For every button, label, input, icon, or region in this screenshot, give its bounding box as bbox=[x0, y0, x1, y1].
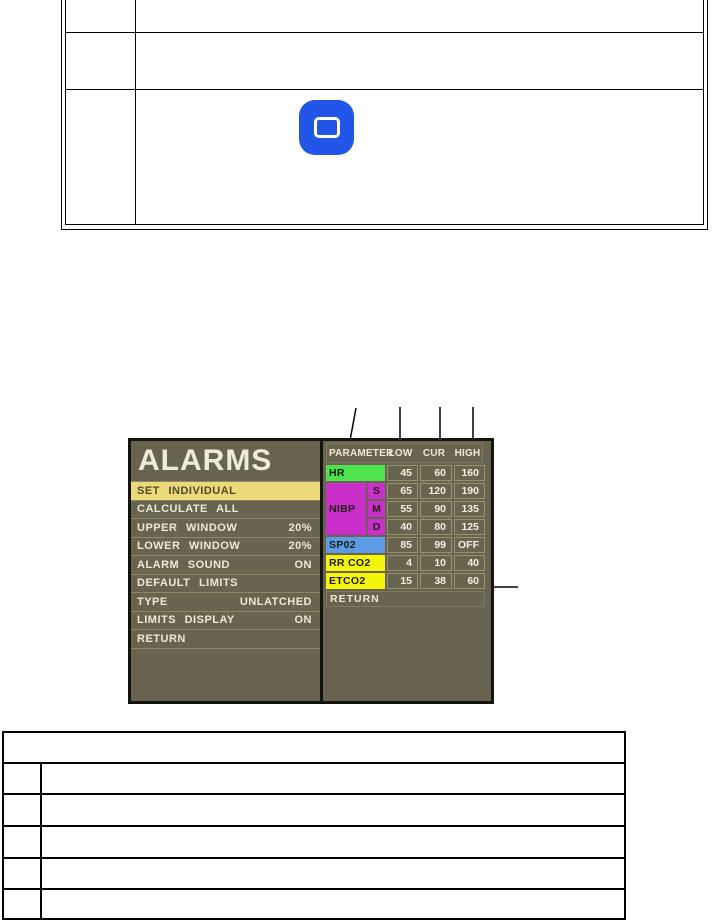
manual-page: ALARMS SET INDIVIDUAL CALCULATE ALL UPPE… bbox=[0, 0, 712, 922]
limit-cell-rr-co2-low[interactable]: 4 bbox=[387, 555, 418, 571]
column-header-high: HIGH bbox=[452, 448, 483, 459]
limit-cell-rr-co2-high[interactable]: 40 bbox=[454, 555, 485, 571]
limit-cell-spo2-high[interactable]: OFF bbox=[454, 537, 485, 553]
param-cell-etco2[interactable]: ETCO2 bbox=[326, 573, 385, 589]
menu-item-label: TYPE bbox=[137, 596, 240, 608]
table-cell bbox=[42, 859, 624, 888]
table-row bbox=[4, 764, 624, 795]
param-cell-spo2[interactable]: SP02 bbox=[326, 537, 385, 553]
table-cell bbox=[4, 764, 42, 793]
subparam-cell-nibp-m: M bbox=[368, 501, 385, 517]
alarms-screen: ALARMS SET INDIVIDUAL CALCULATE ALL UPPE… bbox=[128, 438, 494, 704]
table-cell bbox=[42, 764, 624, 793]
limit-cell-spo2-low[interactable]: 85 bbox=[387, 537, 418, 553]
table-cell bbox=[42, 827, 624, 857]
limit-cell-spo2-cur: 99 bbox=[420, 537, 452, 553]
menu-item-value: 20% bbox=[288, 522, 312, 534]
table-cell bbox=[66, 90, 136, 224]
limit-cell-hr-high[interactable]: 160 bbox=[454, 465, 485, 481]
table-cell bbox=[42, 890, 624, 918]
alarms-menu-list: SET INDIVIDUAL CALCULATE ALL UPPER WINDO… bbox=[131, 481, 320, 649]
table-row bbox=[66, 0, 703, 33]
menu-item-default-limits[interactable]: DEFAULT LIMITS bbox=[131, 575, 320, 594]
table-row bbox=[66, 33, 703, 90]
menu-item-label: CALCULATE ALL bbox=[137, 503, 312, 515]
menu-item-value: 20% bbox=[288, 540, 312, 552]
table-row bbox=[4, 827, 624, 859]
table-cell bbox=[136, 90, 703, 224]
subparam-cell-nibp-d: D bbox=[368, 519, 385, 535]
menu-item-label: LIMITS DISPLAY bbox=[137, 614, 295, 626]
menu-item-return[interactable]: RETURN bbox=[131, 630, 320, 649]
menu-item-alarm-sound[interactable]: ALARM SOUND ON bbox=[131, 556, 320, 575]
table-cell bbox=[4, 827, 42, 857]
limit-cell-nibp-m-cur: 90 bbox=[420, 501, 452, 517]
rounded-square-icon-inner bbox=[314, 117, 340, 138]
table-cell bbox=[42, 795, 624, 825]
limit-cell-etco2-high[interactable]: 60 bbox=[454, 573, 485, 589]
column-header-low: LOW bbox=[385, 448, 416, 459]
table-cell bbox=[66, 0, 136, 32]
param-cell-hr[interactable]: HR bbox=[326, 465, 385, 481]
top-table bbox=[61, 0, 708, 230]
table-cell bbox=[136, 0, 703, 32]
menu-item-limits-display[interactable]: LIMITS DISPLAY ON bbox=[131, 612, 320, 631]
table-row bbox=[4, 795, 624, 827]
menu-item-set-individual[interactable]: SET INDIVIDUAL bbox=[131, 482, 320, 501]
rounded-square-icon bbox=[299, 100, 354, 155]
limits-return-button[interactable]: RETURN bbox=[326, 591, 485, 607]
menu-item-type[interactable]: TYPE UNLATCHED bbox=[131, 593, 320, 612]
subparam-cell-nibp-s: S bbox=[368, 483, 385, 499]
limit-cell-nibp-d-low[interactable]: 40 bbox=[387, 519, 418, 535]
limit-cell-etco2-low[interactable]: 15 bbox=[387, 573, 418, 589]
table-row bbox=[4, 890, 624, 920]
limit-cell-nibp-m-low[interactable]: 55 bbox=[387, 501, 418, 517]
menu-item-label: DEFAULT LIMITS bbox=[137, 577, 312, 589]
page-title: ALARMS bbox=[138, 444, 320, 481]
limits-table-header: PARAMETER LOW CUR HIGH bbox=[326, 443, 483, 463]
alarm-limits-table: HR 45 60 160 NIBP S 65 120 190 M 55 90 1… bbox=[326, 465, 491, 607]
limit-cell-nibp-s-high[interactable]: 190 bbox=[454, 483, 485, 499]
table-cell bbox=[136, 33, 703, 89]
limit-cell-rr-co2-cur: 10 bbox=[420, 555, 452, 571]
bottom-table bbox=[2, 731, 626, 920]
param-cell-nibp[interactable]: NIBP bbox=[326, 483, 366, 535]
menu-item-value: ON bbox=[295, 559, 313, 571]
table-header-row bbox=[4, 733, 624, 764]
top-table-inner bbox=[65, 0, 704, 225]
limit-cell-nibp-s-cur: 120 bbox=[420, 483, 452, 499]
limit-cell-etco2-cur: 38 bbox=[420, 573, 452, 589]
table-row bbox=[66, 90, 703, 224]
limit-cell-hr-low[interactable]: 45 bbox=[387, 465, 418, 481]
menu-item-calculate-all[interactable]: CALCULATE ALL bbox=[131, 501, 320, 520]
table-cell bbox=[66, 33, 136, 89]
menu-item-value: ON bbox=[295, 614, 313, 626]
limit-cell-hr-cur: 60 bbox=[420, 465, 452, 481]
menu-item-value: UNLATCHED bbox=[240, 596, 312, 608]
table-row bbox=[4, 859, 624, 890]
alarms-menu-panel: ALARMS SET INDIVIDUAL CALCULATE ALL UPPE… bbox=[131, 441, 323, 701]
table-cell bbox=[4, 795, 42, 825]
limit-cell-nibp-d-cur: 80 bbox=[420, 519, 452, 535]
menu-item-upper-window[interactable]: UPPER WINDOW 20% bbox=[131, 519, 320, 538]
limit-cell-nibp-s-low[interactable]: 65 bbox=[387, 483, 418, 499]
column-header-parameter: PARAMETER bbox=[327, 448, 384, 459]
limit-cell-nibp-m-high[interactable]: 135 bbox=[454, 501, 485, 517]
table-cell bbox=[4, 859, 42, 888]
menu-item-label: ALARM SOUND bbox=[137, 559, 295, 571]
column-header-cur: CUR bbox=[417, 448, 451, 459]
menu-item-label: SET INDIVIDUAL bbox=[137, 485, 312, 497]
alarm-limits-panel: PARAMETER LOW CUR HIGH HR 45 60 160 NIBP… bbox=[323, 441, 491, 701]
menu-item-label: LOWER WINDOW bbox=[137, 540, 288, 552]
limit-cell-nibp-d-high[interactable]: 125 bbox=[454, 519, 485, 535]
param-cell-rr-co2[interactable]: RR CO2 bbox=[326, 555, 385, 571]
menu-item-label: UPPER WINDOW bbox=[137, 522, 288, 534]
menu-item-lower-window[interactable]: LOWER WINDOW 20% bbox=[131, 538, 320, 557]
menu-item-label: RETURN bbox=[137, 633, 312, 645]
table-cell bbox=[4, 890, 42, 918]
